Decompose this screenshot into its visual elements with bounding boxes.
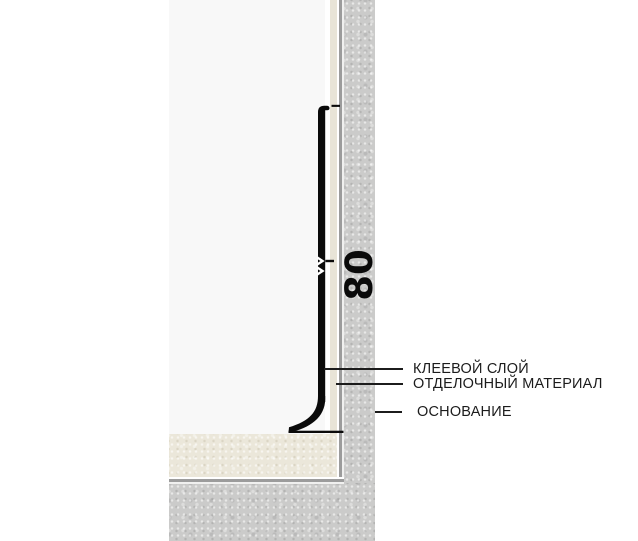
skirting-installation-diagram: 80 КЛЕЕВОЙ СЛОЙ ОТДЕЛОЧНЫЙ МАТЕРИАЛ ОСНО…	[0, 0, 638, 541]
floor-gap-light	[169, 482, 344, 484]
dimension-height-label: 80	[340, 245, 380, 305]
wall-panel	[169, 0, 325, 434]
substrate-floor-band	[169, 483, 375, 541]
leader-line-finishing	[336, 383, 403, 385]
leader-line-substrate	[375, 411, 402, 413]
label-finishing-material: ОТДЕЛОЧНЫЙ МАТЕРИАЛ	[413, 376, 603, 392]
floor-finishing-layer	[169, 434, 337, 477]
leader-line-adhesive	[324, 368, 403, 370]
label-adhesive-layer: КЛЕЕВОЙ СЛОЙ	[413, 361, 529, 377]
label-substrate: ОСНОВАНИЕ	[417, 404, 512, 420]
wall-gap-light	[342, 0, 345, 483]
